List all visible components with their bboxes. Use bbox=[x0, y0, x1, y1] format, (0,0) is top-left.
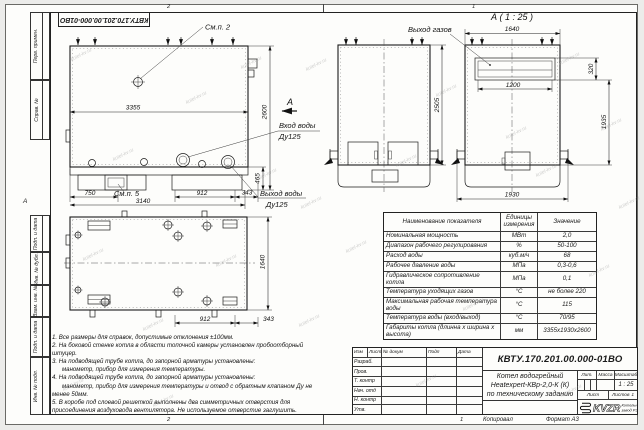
margin-label: Справ. № bbox=[34, 98, 40, 122]
spec-row: Температура воды (вход/выход) °С 70/95 bbox=[384, 313, 596, 323]
zone-label: 1 bbox=[472, 4, 475, 10]
spec-row: Диапазон рабочего регулирования % 50-100 bbox=[384, 241, 596, 251]
spec-units: мм bbox=[500, 324, 537, 339]
base-rear bbox=[465, 165, 560, 187]
dim-base-height: 465 bbox=[255, 173, 262, 184]
spec-units: МПа bbox=[500, 272, 537, 287]
dim-343: 343 bbox=[242, 190, 253, 197]
side-stub bbox=[560, 151, 568, 159]
note-line: менее 50мм. bbox=[52, 391, 357, 399]
callout-2-label: См.п. 2 bbox=[205, 23, 231, 32]
callout-5-target-inner bbox=[108, 178, 124, 187]
note-line: 2. На боковой стенке котла в области топ… bbox=[52, 342, 357, 350]
margin-label: Инв. № дубл. bbox=[34, 253, 40, 285]
sig-row: Утв. bbox=[353, 405, 482, 414]
detail-a-title: А ( 1 : 25 ) bbox=[490, 12, 533, 22]
spec-name: Максимальная рабочая температура воды bbox=[384, 298, 500, 313]
col-izm: Изм bbox=[353, 348, 367, 357]
logo-caption-2: завод РЭП bbox=[620, 407, 637, 412]
dim-a-width: 1640 bbox=[505, 26, 520, 33]
note-line: 1. Все размеры для справок, допустимые о… bbox=[52, 334, 357, 342]
water-inlet-flange bbox=[177, 154, 190, 167]
dim-side-length: 3355 bbox=[126, 105, 141, 112]
rivet-line bbox=[73, 49, 246, 165]
lit-label: Лит. bbox=[578, 371, 596, 379]
margin-box-perv-primen: Перв. примен. bbox=[30, 12, 50, 80]
door-handle bbox=[502, 158, 505, 164]
title-block-name: Котел водогрейный Heatexpert-КВр-2,0-К (… bbox=[483, 371, 578, 414]
boiler-body-rear bbox=[465, 45, 560, 165]
spec-header-value: Значение bbox=[537, 213, 596, 231]
front-view: 2505 bbox=[324, 37, 446, 192]
title-block-signatures: Изм Лист № докум Подп Дата Разраб. Пров.… bbox=[353, 348, 483, 414]
side-view: См.п. 2 3355 А 2600 46 bbox=[66, 23, 320, 210]
dim-plan-343: 343 bbox=[263, 316, 274, 323]
water-outlet-flange-inner bbox=[224, 158, 232, 166]
side-tab bbox=[66, 130, 70, 142]
water-inlet-dn: Ду125 bbox=[278, 132, 301, 141]
spec-value: 0,3-0,6 bbox=[537, 262, 596, 271]
product-name-2: Heatexpert-КВр-2,0-К (К) bbox=[491, 381, 570, 390]
sig-label: Т. контр bbox=[353, 377, 381, 386]
furnace-door-right bbox=[388, 142, 418, 165]
sig-row: Разраб. bbox=[353, 358, 482, 368]
water-outlet-label: Выход воды bbox=[260, 189, 303, 198]
dim-a-body: 1935 bbox=[601, 114, 608, 129]
ash-door bbox=[372, 170, 398, 182]
spec-units: МВт bbox=[500, 232, 537, 241]
spec-name: Температура уходящих газов bbox=[384, 288, 500, 297]
spec-table: Наименование показателя Единицы измерени… bbox=[383, 212, 597, 340]
gas-outlet-leader bbox=[450, 34, 490, 65]
logo-text: KVZR bbox=[593, 403, 621, 413]
sig-row: Н. контр bbox=[353, 397, 482, 406]
spec-row: Гидравлическое сопротивление котла МПа 0… bbox=[384, 271, 596, 287]
margin-box-inv-dubl: Инв. № дубл. bbox=[30, 252, 50, 285]
spec-value: 2,0 bbox=[537, 232, 596, 241]
water-outlet-dn: Ду125 bbox=[265, 200, 288, 209]
sig-label: Н. контр bbox=[353, 397, 381, 405]
col-podp: Подп bbox=[426, 348, 456, 357]
margin-label: Инв. № подл. bbox=[34, 370, 40, 402]
margin-label: Перв. примен. bbox=[34, 29, 40, 63]
base-foot-left bbox=[78, 175, 146, 190]
callout-2-leader bbox=[141, 27, 204, 79]
note-line: штуцер. bbox=[52, 350, 357, 358]
spec-name: Гидравлическое сопротивление котла bbox=[384, 272, 500, 287]
plan-view: 1640 912 343 bbox=[64, 211, 274, 327]
product-name-1: Котел водогрейный bbox=[497, 372, 564, 381]
spec-units: °С bbox=[500, 298, 537, 313]
zone-tick bbox=[323, 415, 324, 425]
ext-lines bbox=[555, 58, 612, 165]
spec-value: 68 bbox=[537, 252, 596, 261]
zone-label-side: А bbox=[23, 198, 27, 205]
water-inlet-leader bbox=[188, 131, 278, 157]
door-handle bbox=[375, 151, 378, 159]
note-line: манометр, прибор для измерения температу… bbox=[52, 383, 357, 391]
spec-units: куб.м/ч bbox=[500, 252, 537, 261]
sig-label: Нач. отд bbox=[353, 387, 381, 396]
margin-label: Взам. инв. № bbox=[34, 285, 40, 317]
margin-box-sprav: Справ. № bbox=[30, 80, 50, 140]
title-block-doc-number: КВТУ.170.201.00.000-01ВО bbox=[483, 348, 637, 371]
side-fitting bbox=[248, 59, 257, 68]
scale-value: 1 : 25 bbox=[614, 380, 637, 390]
zone-tick bbox=[323, 4, 324, 12]
spec-row: Габариты котла (длинна х ширина х высота… bbox=[384, 323, 596, 339]
dim-a-bottom: 1930 bbox=[505, 192, 520, 199]
title-block-header-row: Изм Лист № докум Подп Дата bbox=[353, 348, 482, 358]
title-block-main: КВТУ.170.201.00.000-01ВО Котел водогрейн… bbox=[483, 348, 637, 414]
spec-header-row: Наименование показателя Единицы измерени… bbox=[384, 213, 596, 231]
side-stub bbox=[457, 151, 465, 159]
logo-graphic: KVZR Котельный завод РЭП bbox=[579, 401, 637, 414]
spec-header-name: Наименование показателя bbox=[384, 213, 500, 231]
spec-header-units: Единицы измерения bbox=[500, 213, 537, 231]
plan-stub bbox=[122, 211, 127, 217]
spec-row: Номинальная мощность МВт 2,0 bbox=[384, 231, 596, 241]
zone-label: 1 bbox=[460, 417, 463, 423]
dim-912: 912 bbox=[197, 190, 208, 197]
format-label: Формат А3 bbox=[546, 417, 579, 423]
spec-name: Температура воды (вход/выход) bbox=[384, 314, 500, 323]
zone-label: 2 bbox=[167, 4, 170, 10]
boiler-body-plan bbox=[70, 217, 247, 310]
sheet-label: Лист bbox=[578, 391, 608, 399]
rivet-line bbox=[73, 220, 245, 308]
dim-side-height: 2600 bbox=[262, 104, 269, 120]
gas-outlet-label: Выход газов bbox=[408, 25, 452, 34]
spec-value: 70/95 bbox=[537, 314, 596, 323]
plan-stub bbox=[156, 310, 161, 317]
margin-label: Подп. и дата bbox=[34, 321, 40, 353]
scale-label: Масштаб bbox=[614, 371, 637, 379]
plan-tab bbox=[66, 235, 70, 245]
zone-label: 2 bbox=[167, 417, 170, 423]
boiler-body-side bbox=[70, 46, 248, 167]
rivet-line bbox=[468, 48, 558, 163]
spec-units: % bbox=[500, 242, 537, 251]
kopiroval-label: Копировал bbox=[483, 417, 513, 423]
sig-row: Пров. bbox=[353, 367, 482, 377]
col-data: Дата bbox=[456, 348, 482, 357]
product-name-3: по техническому заданию bbox=[487, 390, 574, 399]
plan-stub bbox=[202, 211, 207, 217]
section-letter: А bbox=[286, 97, 293, 107]
small-flange bbox=[199, 161, 206, 168]
margin-box-vzam-inv: Взам. инв. № bbox=[30, 285, 50, 317]
dim-plan-912: 912 bbox=[200, 316, 211, 323]
dim-a-opening: 1200 bbox=[506, 82, 521, 89]
callout-2-cross bbox=[131, 75, 145, 89]
mass-label: Масса bbox=[596, 371, 614, 379]
logo-coil-icon bbox=[580, 403, 590, 413]
spec-name: Габариты котла (длинна х ширина х высота… bbox=[384, 324, 500, 339]
dim-3140: 3140 bbox=[136, 198, 151, 205]
furnace-door-left bbox=[348, 142, 378, 165]
notes: 1. Все размеры для справок, допустимые о… bbox=[52, 334, 357, 415]
note-line: 3. На подводящей трубе котла, до запорно… bbox=[52, 358, 357, 366]
base-rail bbox=[70, 167, 248, 175]
small-flange bbox=[89, 160, 96, 167]
note-line: присоединения воздуховода вентилятора. Н… bbox=[52, 407, 357, 415]
plan-flanges bbox=[74, 219, 214, 308]
gas-outlet-opening bbox=[475, 58, 555, 80]
dim-a-opening-h: 320 bbox=[588, 63, 595, 74]
base-foot-right bbox=[172, 175, 242, 190]
title-block: Изм Лист № докум Подп Дата Разраб. Пров.… bbox=[352, 347, 638, 415]
sheets-value: 1 bbox=[631, 393, 634, 398]
spec-row: Температура уходящих газов °С не более 2… bbox=[384, 287, 596, 297]
gas-outlet-inner bbox=[478, 61, 552, 77]
spec-value: 0,1 bbox=[537, 272, 596, 287]
drawing-sheet: Перв. примен. Справ. № Подп. и дата Инв.… bbox=[0, 0, 644, 430]
door-handle bbox=[389, 151, 392, 159]
plan-stub bbox=[212, 310, 217, 317]
margin-box-podp-data-2: Подп. и дата bbox=[30, 317, 50, 357]
spec-name: Расход воды bbox=[384, 252, 500, 261]
plan-stub bbox=[90, 310, 95, 317]
spec-row: Максимальная рабочая температура воды °С… bbox=[384, 297, 596, 313]
spec-row: Расход воды куб.м/ч 68 bbox=[384, 251, 596, 261]
manufacturer-logo: KVZR Котельный завод РЭП bbox=[578, 400, 637, 414]
margin-box-podp-data-1: Подп. и дата bbox=[30, 215, 50, 252]
side-stub bbox=[430, 151, 438, 159]
dim-front-height: 2505 bbox=[434, 97, 441, 113]
spec-row: Рабочее давление воды МПа 0,3-0,6 bbox=[384, 261, 596, 271]
small-flange bbox=[141, 159, 148, 166]
spec-value: 115 bbox=[537, 298, 596, 313]
dim-plan-width: 1640 bbox=[260, 254, 267, 269]
sig-label: Пров. bbox=[353, 367, 381, 376]
rivet-line bbox=[341, 48, 428, 163]
sig-label: Разраб. bbox=[353, 358, 381, 367]
side-fitting bbox=[248, 70, 254, 77]
spec-units: МПа bbox=[500, 262, 537, 271]
rear-door bbox=[505, 152, 530, 170]
dim-750: 750 bbox=[85, 190, 96, 197]
spec-units: °С bbox=[500, 288, 537, 297]
spec-value: 50-100 bbox=[537, 242, 596, 251]
sig-label: Утв. bbox=[353, 405, 381, 414]
callout-5-target bbox=[105, 175, 127, 190]
side-stub bbox=[330, 151, 338, 159]
col-ndokum: № докум bbox=[381, 348, 426, 357]
spec-name: Номинальная мощность bbox=[384, 232, 500, 241]
sig-row: Нач. отд bbox=[353, 387, 482, 397]
note-line: 5. В коробе под слоевой решеткой выполне… bbox=[52, 399, 357, 407]
margin-label: Подп. и дата bbox=[34, 217, 40, 249]
spec-name: Рабочее давление воды bbox=[384, 262, 500, 271]
col-list: Лист bbox=[367, 348, 381, 357]
note-line: 4. На подводящей трубе котла, до запорно… bbox=[52, 374, 357, 382]
water-inlet-flange-inner bbox=[179, 156, 187, 164]
sheets-label: Листов bbox=[612, 393, 629, 398]
spec-units: °С bbox=[500, 314, 537, 323]
sig-row: Т. контр bbox=[353, 377, 482, 387]
leader-dot bbox=[489, 64, 491, 66]
spec-name: Диапазон рабочего регулирования bbox=[384, 242, 500, 251]
margin-box-inv-podl: Инв. № подл. bbox=[30, 357, 50, 415]
spec-value: 3355х1930х2600 bbox=[537, 324, 596, 339]
water-inlet-label: Вход воды bbox=[279, 121, 316, 130]
note-line: манометр, прибор для измерения температу… bbox=[52, 366, 357, 374]
spec-value: не более 220 bbox=[537, 288, 596, 297]
